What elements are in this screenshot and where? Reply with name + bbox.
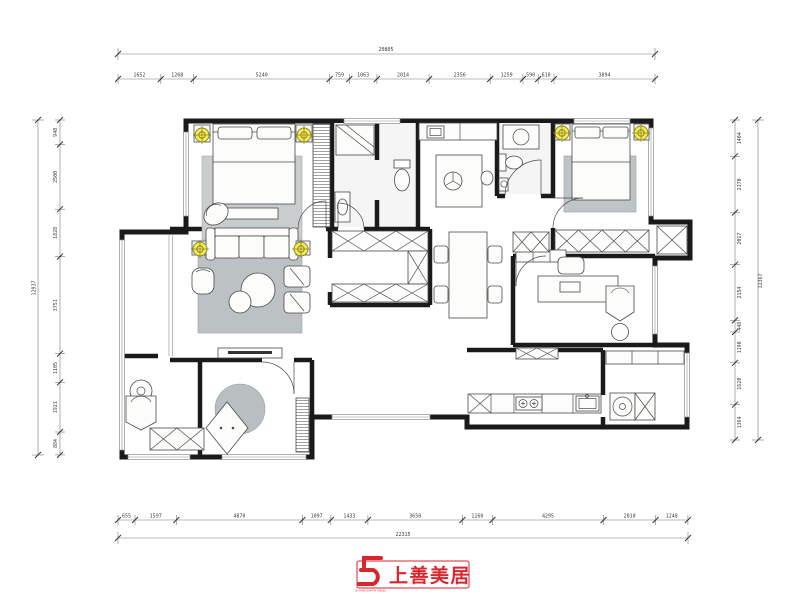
- sofa-armrest: [206, 228, 215, 260]
- dim-label: 448: [737, 322, 743, 331]
- dim-label: 3751: [53, 299, 59, 311]
- dim-total-left: 12937: [32, 280, 38, 295]
- toilet-bowl: [395, 169, 410, 191]
- sofa-back: [215, 228, 289, 236]
- brand-logo: SHANGSHAN MEIJU 上善美居: [355, 558, 471, 593]
- dim-label: 2170: [737, 178, 743, 190]
- sink: [427, 126, 444, 138]
- master-wardrobe: [313, 124, 330, 227]
- bedroom-2: [553, 124, 649, 252]
- dim-label: 1063: [357, 73, 369, 79]
- corner-chair: [126, 396, 156, 430]
- dim-label: 759: [335, 73, 344, 79]
- dim-label: 4870: [233, 514, 245, 520]
- sofa-cushion: [239, 236, 264, 258]
- dim-label: 1433: [343, 514, 355, 520]
- dim-total-top: 20805: [378, 47, 393, 53]
- logo-mark-icon: [359, 558, 381, 584]
- kitchen-top: [419, 123, 497, 207]
- dining-chair: [434, 246, 448, 263]
- dim-label: 2500: [53, 171, 59, 183]
- door-arc: [262, 362, 294, 394]
- dim-label: 1190: [737, 341, 743, 353]
- coffee-table: [229, 291, 251, 313]
- closet-bump: [657, 226, 687, 254]
- top-cabinet: [516, 348, 558, 359]
- dim-label: 2154: [737, 286, 743, 298]
- dining-chair: [488, 246, 502, 263]
- dim-label: 1160: [471, 514, 483, 520]
- dining-table: [449, 232, 487, 318]
- stool: [481, 171, 493, 185]
- dim-label: 1828: [53, 227, 59, 239]
- dim-label: 590: [526, 73, 535, 79]
- dim-label: 948: [53, 128, 59, 137]
- pouf: [612, 324, 629, 341]
- toilet-tank: [394, 160, 410, 168]
- dim-label: 1105: [53, 362, 59, 374]
- dim-label: 2010: [624, 514, 636, 520]
- dim-label: 2014: [397, 73, 409, 79]
- dim-label: 1620: [737, 378, 743, 390]
- sofa-cushion: [264, 236, 289, 258]
- sliding-door: [169, 234, 173, 356]
- pillow: [218, 127, 252, 139]
- dim-label: 1364: [737, 416, 743, 428]
- dim-label: 1921: [53, 401, 59, 413]
- study: [516, 250, 634, 341]
- wardrobe: [555, 230, 649, 252]
- dim-label: 5240: [256, 73, 268, 79]
- dining: [434, 232, 502, 318]
- dim-label: 3650: [409, 514, 421, 520]
- tv: [228, 351, 272, 354]
- floor-plan-page: 1652126852407591063201423561259590610389…: [0, 0, 800, 600]
- balcony: [126, 380, 204, 450]
- dining-chair: [488, 286, 502, 303]
- pillow: [257, 127, 291, 139]
- dim-label: 1404: [737, 132, 743, 144]
- toilet-tank: [499, 154, 506, 171]
- dim-total-right: 12367: [758, 273, 764, 288]
- corridor-wardrobe: [513, 232, 549, 252]
- shelf-row: [606, 351, 684, 364]
- living-room: [192, 228, 310, 358]
- lounge-chair: [606, 286, 634, 321]
- dim-total-bottom: 22315: [395, 532, 410, 538]
- basin-bowl: [338, 199, 348, 215]
- master-bedroom: [194, 124, 312, 240]
- dining-chair: [434, 286, 448, 303]
- louver-cabinet: [296, 398, 309, 452]
- laptop: [560, 282, 580, 292]
- dim-label: 3894: [598, 73, 610, 79]
- dim-label: 610: [542, 73, 551, 79]
- bench: [150, 428, 204, 450]
- logo-text: 上善美居: [389, 564, 471, 587]
- utility: [606, 351, 684, 420]
- dim-label: 2356: [454, 73, 466, 79]
- floor-plan-drawing: 1652126852407591063201423561259590610389…: [0, 0, 800, 600]
- dim-label: 4295: [542, 514, 554, 520]
- walk-in-closet: [332, 231, 428, 302]
- dim-label: 1652: [133, 73, 145, 79]
- dim-label: 1097: [311, 514, 323, 520]
- dim-label: 655: [122, 514, 131, 520]
- desk-chair: [558, 257, 584, 274]
- washing-machine: [503, 125, 539, 149]
- dim-label: 1597: [150, 514, 162, 520]
- logo-subtext: SHANGSHAN MEIJU: [355, 589, 386, 593]
- pillow: [575, 127, 600, 138]
- dim-label: 1268: [171, 73, 183, 79]
- kitchen: [468, 348, 601, 413]
- dim-label: 884: [53, 439, 59, 448]
- dim-label: 1248: [666, 514, 678, 520]
- kids-bedroom: [206, 362, 309, 454]
- bed-bench: [224, 208, 278, 219]
- lounge-chair: [192, 268, 214, 294]
- sofa-cushion: [215, 236, 239, 258]
- dim-label: 1259: [501, 73, 513, 79]
- pillow: [603, 127, 628, 138]
- dim-label: 2017: [737, 233, 743, 245]
